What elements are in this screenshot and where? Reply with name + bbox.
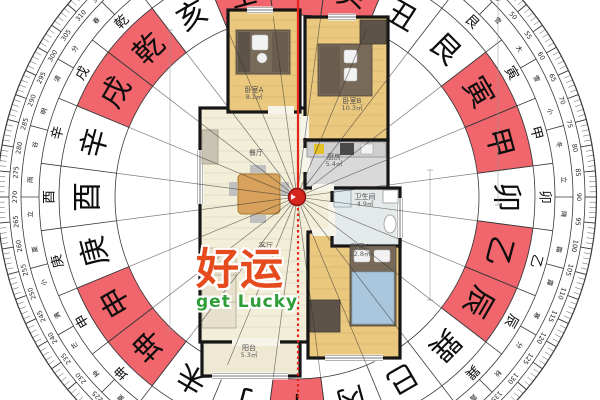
svg-text:明: 明 bbox=[39, 107, 49, 116]
svg-text:雪: 雪 bbox=[492, 16, 502, 26]
svg-text:120: 120 bbox=[535, 331, 548, 346]
svg-text:冬: 冬 bbox=[468, 0, 479, 2]
svg-text:小: 小 bbox=[38, 278, 49, 288]
svg-text:小: 小 bbox=[545, 107, 556, 117]
svg-text:270: 270 bbox=[11, 191, 19, 203]
svg-text:庚: 庚 bbox=[74, 232, 116, 270]
svg-text:100: 100 bbox=[570, 239, 580, 253]
svg-text:65: 65 bbox=[547, 72, 558, 83]
svg-text:寒: 寒 bbox=[531, 311, 542, 321]
svg-text:辛: 辛 bbox=[48, 124, 67, 141]
luopan-compass-floorplan: 0510152025303540455055606570758085909510… bbox=[0, 0, 600, 400]
svg-text:露: 露 bbox=[545, 278, 555, 287]
svg-text:240: 240 bbox=[46, 331, 59, 346]
svg-text:满: 满 bbox=[51, 310, 62, 320]
svg-text:55: 55 bbox=[522, 30, 533, 41]
svg-text:艮: 艮 bbox=[422, 26, 468, 72]
svg-text:125: 125 bbox=[521, 351, 535, 366]
svg-text:丁: 丁 bbox=[224, 378, 262, 400]
svg-text:露: 露 bbox=[468, 392, 479, 400]
svg-text:305: 305 bbox=[59, 28, 73, 43]
svg-text:酉: 酉 bbox=[42, 190, 58, 204]
svg-text:霜: 霜 bbox=[554, 245, 563, 253]
svg-text:种: 种 bbox=[90, 368, 101, 379]
svg-text:235: 235 bbox=[59, 351, 73, 366]
svg-text:冬: 冬 bbox=[554, 141, 564, 150]
svg-text:70: 70 bbox=[557, 95, 567, 106]
svg-text:卯: 卯 bbox=[537, 190, 553, 204]
svg-text:巽: 巽 bbox=[422, 322, 468, 368]
svg-text:105: 105 bbox=[564, 263, 575, 277]
svg-text:280: 280 bbox=[14, 141, 24, 155]
svg-text:90: 90 bbox=[575, 193, 583, 201]
svg-text:60: 60 bbox=[536, 50, 547, 61]
svg-text:庚: 庚 bbox=[48, 252, 67, 269]
svg-text:260: 260 bbox=[14, 239, 24, 253]
svg-text:80: 80 bbox=[570, 143, 579, 153]
svg-text:分: 分 bbox=[69, 43, 80, 54]
svg-text:95: 95 bbox=[574, 217, 583, 226]
svg-text:分: 分 bbox=[514, 340, 525, 351]
svg-text:230: 230 bbox=[74, 371, 88, 386]
svg-text:秋: 秋 bbox=[492, 368, 503, 379]
svg-text:130: 130 bbox=[506, 371, 520, 386]
svg-text:清: 清 bbox=[52, 73, 63, 83]
svg-text:85: 85 bbox=[574, 168, 583, 177]
feng-shui-analysis-image: 0510152025303540455055606570758085909510… bbox=[0, 0, 600, 400]
svg-text:275: 275 bbox=[12, 166, 21, 179]
svg-text:夏: 夏 bbox=[31, 245, 40, 253]
svg-text:卯: 卯 bbox=[489, 182, 524, 212]
svg-text:立: 立 bbox=[559, 176, 568, 184]
svg-text:310: 310 bbox=[74, 8, 88, 23]
svg-text:酉: 酉 bbox=[71, 182, 106, 212]
svg-text:芒: 芒 bbox=[69, 340, 80, 351]
svg-text:降: 降 bbox=[559, 211, 568, 219]
svg-text:265: 265 bbox=[12, 215, 21, 228]
svg-text:春: 春 bbox=[91, 15, 102, 26]
svg-text:300: 300 bbox=[46, 49, 59, 64]
svg-text:大: 大 bbox=[514, 43, 525, 54]
svg-text:夏: 夏 bbox=[115, 392, 126, 400]
svg-text:蛰: 蛰 bbox=[115, 0, 126, 2]
svg-text:雨: 雨 bbox=[26, 176, 34, 184]
svg-text:雪: 雪 bbox=[531, 74, 541, 83]
svg-text:255: 255 bbox=[19, 263, 30, 277]
svg-text:75: 75 bbox=[564, 119, 574, 129]
svg-text:谷: 谷 bbox=[30, 140, 40, 149]
svg-text:甲: 甲 bbox=[527, 124, 546, 141]
svg-text:立: 立 bbox=[25, 210, 34, 218]
svg-text:乙: 乙 bbox=[527, 252, 546, 269]
svg-text:亥: 亥 bbox=[171, 0, 214, 39]
svg-text:巳: 巳 bbox=[380, 355, 423, 400]
svg-text:辛: 辛 bbox=[74, 124, 116, 162]
svg-text:丙: 丙 bbox=[332, 378, 370, 400]
svg-text:285: 285 bbox=[19, 117, 30, 131]
